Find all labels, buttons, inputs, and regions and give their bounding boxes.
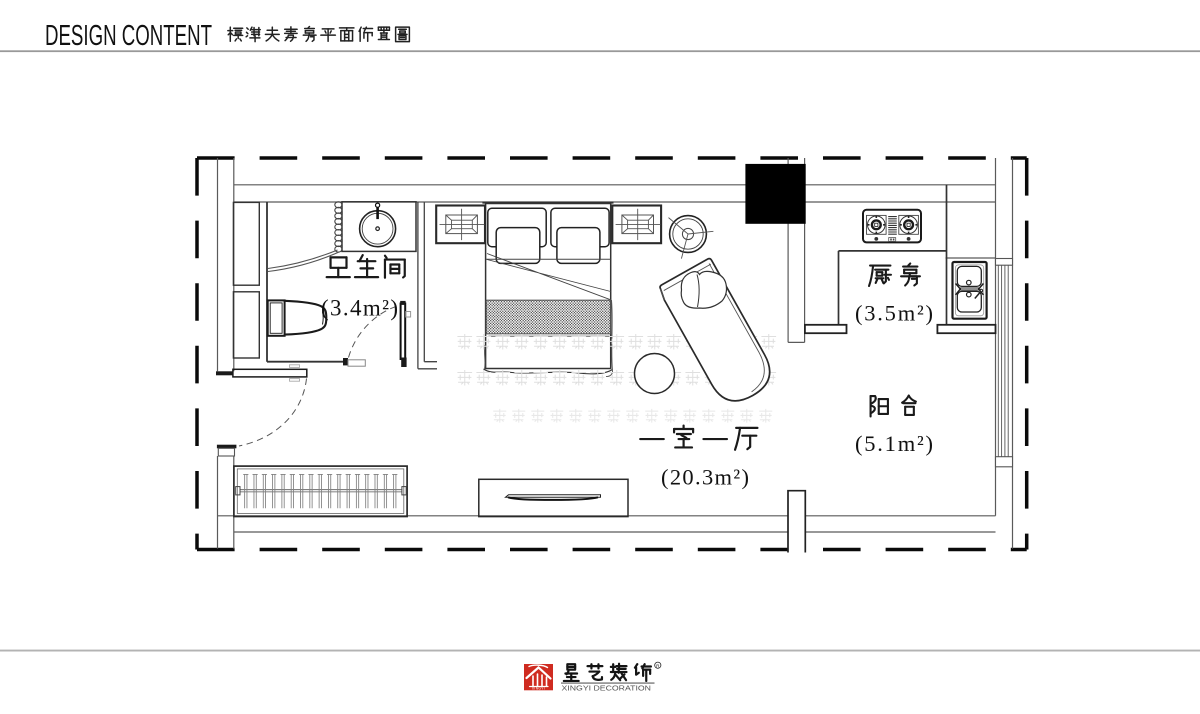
- svg-text:XINGYI: XINGYI: [532, 687, 545, 691]
- svg-text:(3.5m²): (3.5m²): [855, 301, 933, 326]
- svg-text:XINGYI DECORATION: XINGYI DECORATION: [562, 683, 652, 692]
- svg-text:(20.3m²): (20.3m²): [661, 465, 749, 490]
- svg-text:(5.1m²): (5.1m²): [855, 431, 933, 456]
- svg-text:(3.4m²): (3.4m²): [321, 296, 398, 321]
- svg-text:DESIGN CONTENT: DESIGN CONTENT: [45, 20, 212, 52]
